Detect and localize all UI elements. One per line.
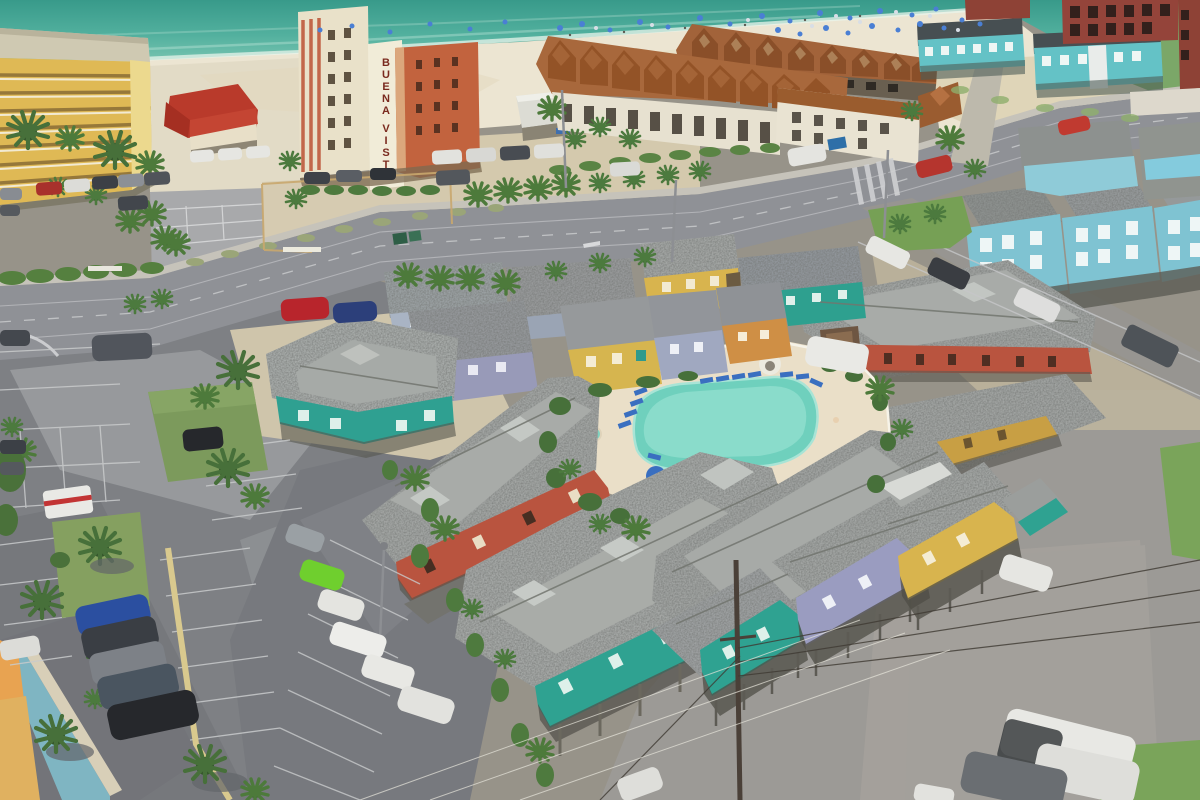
svg-text:I: I xyxy=(384,135,387,147)
svg-text:N: N xyxy=(382,93,390,105)
svg-text:S: S xyxy=(382,147,389,159)
svg-text:E: E xyxy=(382,81,389,93)
svg-text:V: V xyxy=(382,123,390,135)
svg-text:U: U xyxy=(382,69,390,81)
svg-text:B: B xyxy=(382,57,390,69)
svg-text:A: A xyxy=(382,105,390,117)
